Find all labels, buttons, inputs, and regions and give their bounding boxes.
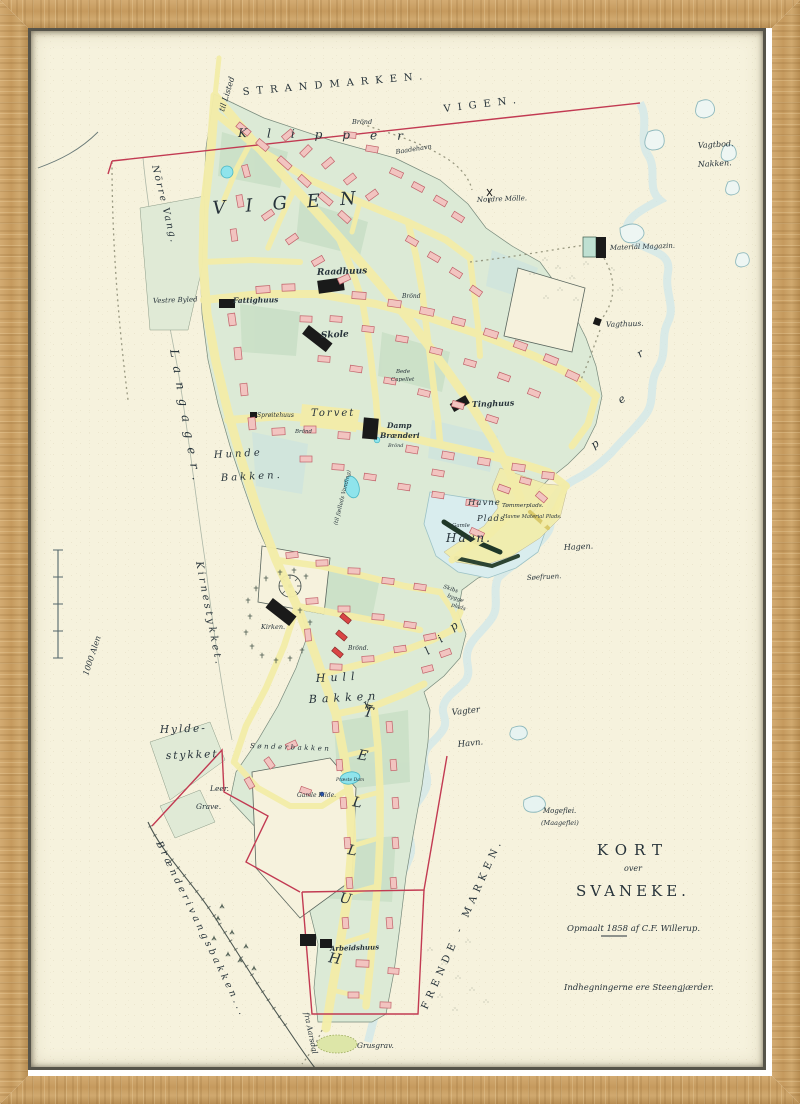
framed-map-poster: STRANDMARKEN.til ListedKlipperVIGEN.Brön… [0,0,800,1104]
picture-frame-bottom [0,1076,800,1104]
map-paper [31,31,763,1067]
picture-frame-right [772,0,800,1104]
picture-frame-top [0,0,800,28]
picture-frame-left [0,0,28,1104]
